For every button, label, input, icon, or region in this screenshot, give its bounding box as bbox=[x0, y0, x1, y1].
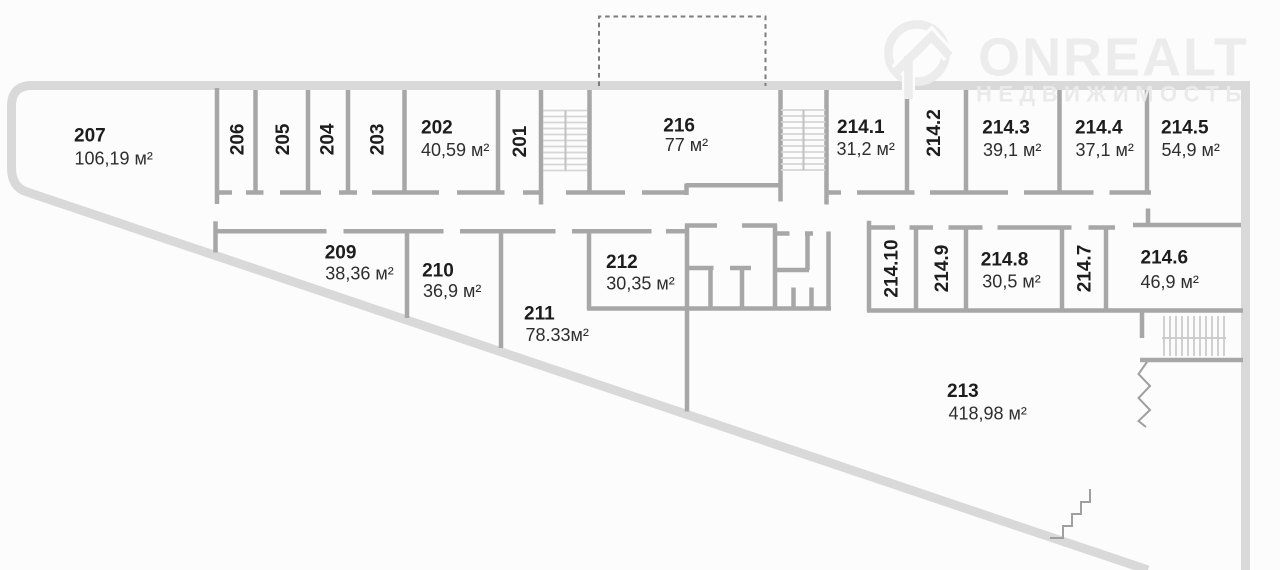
svg-text:207: 207 bbox=[74, 126, 106, 147]
svg-text:212: 212 bbox=[606, 252, 638, 273]
svg-text:205: 205 bbox=[273, 123, 294, 155]
svg-text:106,19 м²: 106,19 м² bbox=[75, 149, 153, 169]
svg-text:54,9 м²: 54,9 м² bbox=[1162, 140, 1220, 160]
svg-text:214.6: 214.6 bbox=[1141, 248, 1189, 269]
svg-text:210: 210 bbox=[422, 261, 454, 282]
svg-text:НЕДВИЖИМОСТЬ: НЕДВИЖИМОСТЬ bbox=[976, 82, 1248, 107]
svg-text:418,98 м²: 418,98 м² bbox=[949, 404, 1027, 424]
svg-text:40,59 м²: 40,59 м² bbox=[421, 140, 489, 160]
svg-text:206: 206 bbox=[227, 124, 248, 156]
svg-text:214.3: 214.3 bbox=[982, 118, 1030, 139]
svg-text:214.5: 214.5 bbox=[1161, 118, 1209, 139]
svg-text:214.2: 214.2 bbox=[924, 109, 945, 157]
svg-text:203: 203 bbox=[368, 124, 389, 156]
svg-text:38,36 м²: 38,36 м² bbox=[325, 264, 393, 284]
svg-text:214.9: 214.9 bbox=[932, 245, 953, 293]
svg-text:204: 204 bbox=[318, 123, 339, 155]
svg-text:209: 209 bbox=[325, 243, 357, 264]
svg-text:31,2 м²: 31,2 м² bbox=[837, 139, 895, 159]
svg-text:216: 216 bbox=[663, 116, 695, 137]
svg-text:39,1 м²: 39,1 м² bbox=[983, 140, 1041, 160]
svg-text:214.4: 214.4 bbox=[1075, 118, 1123, 139]
svg-text:214.1: 214.1 bbox=[837, 117, 885, 138]
svg-text:30,35 м²: 30,35 м² bbox=[606, 274, 674, 294]
svg-text:78.33м²: 78.33м² bbox=[526, 325, 589, 345]
svg-text:202: 202 bbox=[421, 118, 453, 139]
svg-text:37,1 м²: 37,1 м² bbox=[1076, 140, 1134, 160]
svg-text:77 м²: 77 м² bbox=[665, 135, 708, 155]
svg-text:214.10: 214.10 bbox=[882, 239, 903, 297]
svg-text:ONREALT: ONREALT bbox=[978, 28, 1249, 88]
svg-text:211: 211 bbox=[524, 304, 555, 325]
svg-text:36,9 м²: 36,9 м² bbox=[423, 281, 481, 301]
svg-text:201: 201 bbox=[510, 125, 531, 157]
svg-text:213: 213 bbox=[947, 381, 979, 402]
svg-text:214.8: 214.8 bbox=[981, 250, 1029, 271]
svg-text:30,5 м²: 30,5 м² bbox=[982, 272, 1040, 292]
svg-text:46,9 м²: 46,9 м² bbox=[1141, 272, 1199, 292]
svg-text:214.7: 214.7 bbox=[1075, 245, 1096, 293]
